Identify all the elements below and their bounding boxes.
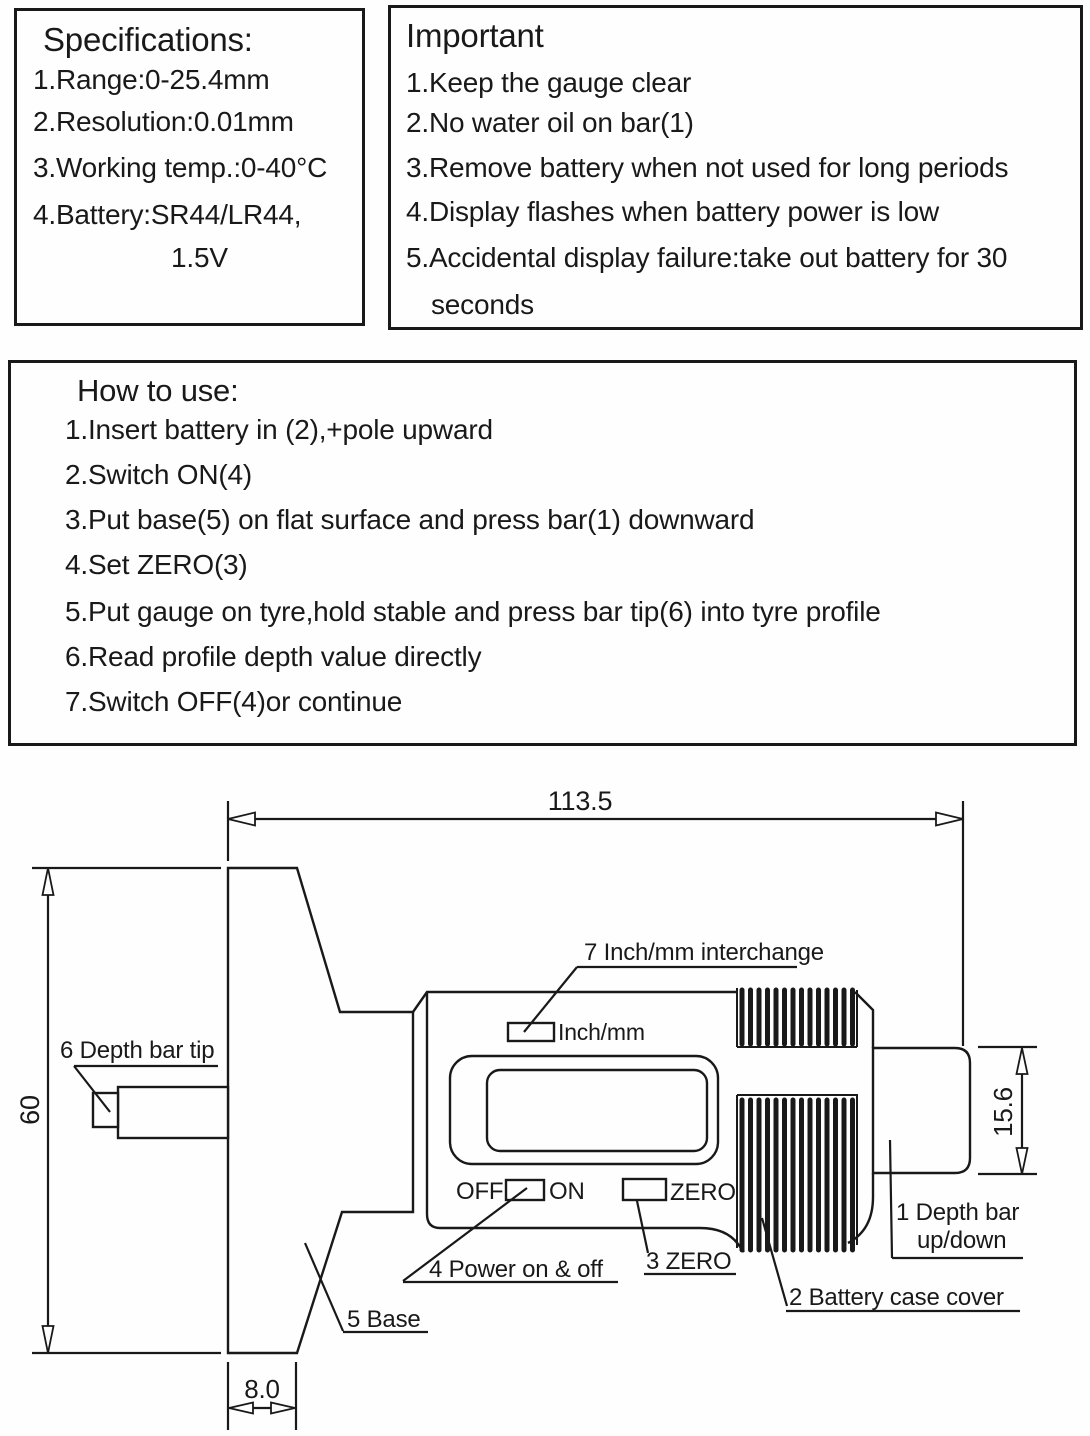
callout-1-label-line2: up/down bbox=[917, 1227, 1006, 1254]
important-panel: Important 1.Keep the gauge clear 2.No wa… bbox=[388, 5, 1083, 330]
gauge-diagram: Inch/mm OFF ON ZERO 113.5 60 8.0 bbox=[0, 756, 1090, 1436]
dim-15-6: 15.6 bbox=[988, 1087, 1018, 1137]
important-item-3: 3.Remove battery when not used for long … bbox=[406, 153, 1008, 182]
inch-mm-button-drawing bbox=[508, 1023, 554, 1041]
callout-6-label: 6 Depth bar tip bbox=[60, 1037, 214, 1064]
how-item-3: 3.Put base(5) on flat surface and press … bbox=[65, 505, 754, 534]
how-item-7: 7.Switch OFF(4)or continue bbox=[65, 687, 402, 716]
callout-zero: 3 ZERO bbox=[637, 1201, 736, 1275]
important-item-2: 2.No water oil on bar(1) bbox=[406, 108, 694, 137]
important-item-1: 1.Keep the gauge clear bbox=[406, 68, 691, 97]
dim-113-5: 113.5 bbox=[548, 786, 613, 816]
how-item-6: 6.Read profile depth value directly bbox=[65, 642, 481, 671]
how-item-5: 5.Put gauge on tyre,hold stable and pres… bbox=[65, 597, 881, 626]
zero-button-drawing bbox=[623, 1179, 666, 1200]
callout-power: 4 Power on & off bbox=[403, 1188, 618, 1283]
spec-item-3: 3.Working temp.:0-40°C bbox=[33, 153, 327, 182]
callout-4-label: 4 Power on & off bbox=[429, 1256, 603, 1283]
depth-bar-right bbox=[873, 1048, 970, 1173]
how-item-2: 2.Switch ON(4) bbox=[65, 460, 252, 489]
how-item-4: 4.Set ZERO(3) bbox=[65, 550, 248, 579]
how-to-use-panel: How to use: 1.Insert battery in (2),+pol… bbox=[8, 360, 1077, 746]
callout-2-label: 2 Battery case cover bbox=[789, 1284, 1004, 1311]
spec-item-1: 1.Range:0-25.4mm bbox=[33, 65, 269, 94]
dim-8-0: 8.0 bbox=[244, 1374, 280, 1404]
callout-5-label: 5 Base bbox=[347, 1306, 421, 1333]
how-to-use-title: How to use: bbox=[77, 375, 239, 408]
spec-item-4-cont: 1.5V bbox=[171, 243, 228, 272]
depth-bar-tip bbox=[93, 1093, 118, 1127]
important-item-4: 4.Display flashes when battery power is … bbox=[406, 197, 939, 226]
inch-mm-button-label: Inch/mm bbox=[558, 1019, 645, 1045]
spec-item-4: 4.Battery:SR44/LR44, bbox=[33, 200, 301, 229]
dim-60: 60 bbox=[15, 1095, 45, 1125]
callout-1-label-line1: 1 Depth bar bbox=[896, 1199, 1019, 1226]
callout-7-label: 7 Inch/mm interchange bbox=[584, 939, 824, 966]
important-item-5: 5.Accidental display failure:take out ba… bbox=[406, 243, 1007, 272]
specifications-title: Specifications: bbox=[43, 23, 253, 58]
on-label: ON bbox=[549, 1178, 585, 1205]
important-item-5-cont: seconds bbox=[431, 290, 534, 319]
depth-bar-left bbox=[118, 1087, 228, 1138]
how-item-1: 1.Insert battery in (2),+pole upward bbox=[65, 415, 493, 444]
dimension-bar-height: 15.6 bbox=[978, 1047, 1037, 1174]
instruction-sheet: Specifications: 1.Range:0-25.4mm 2.Resol… bbox=[0, 0, 1090, 1436]
lcd-display bbox=[450, 1056, 718, 1164]
important-title: Important bbox=[406, 19, 544, 54]
zero-button-label: ZERO bbox=[670, 1179, 736, 1206]
dimension-base-width: 8.0 bbox=[228, 1362, 296, 1430]
battery-cover-ribs bbox=[737, 1095, 858, 1250]
spec-item-2: 2.Resolution:0.01mm bbox=[33, 107, 294, 136]
specifications-panel: Specifications: 1.Range:0-25.4mm 2.Resol… bbox=[14, 8, 365, 326]
callout-3-label: 3 ZERO bbox=[646, 1248, 731, 1275]
off-label: OFF bbox=[456, 1178, 503, 1205]
thumbwheel-ribs bbox=[737, 988, 857, 1047]
